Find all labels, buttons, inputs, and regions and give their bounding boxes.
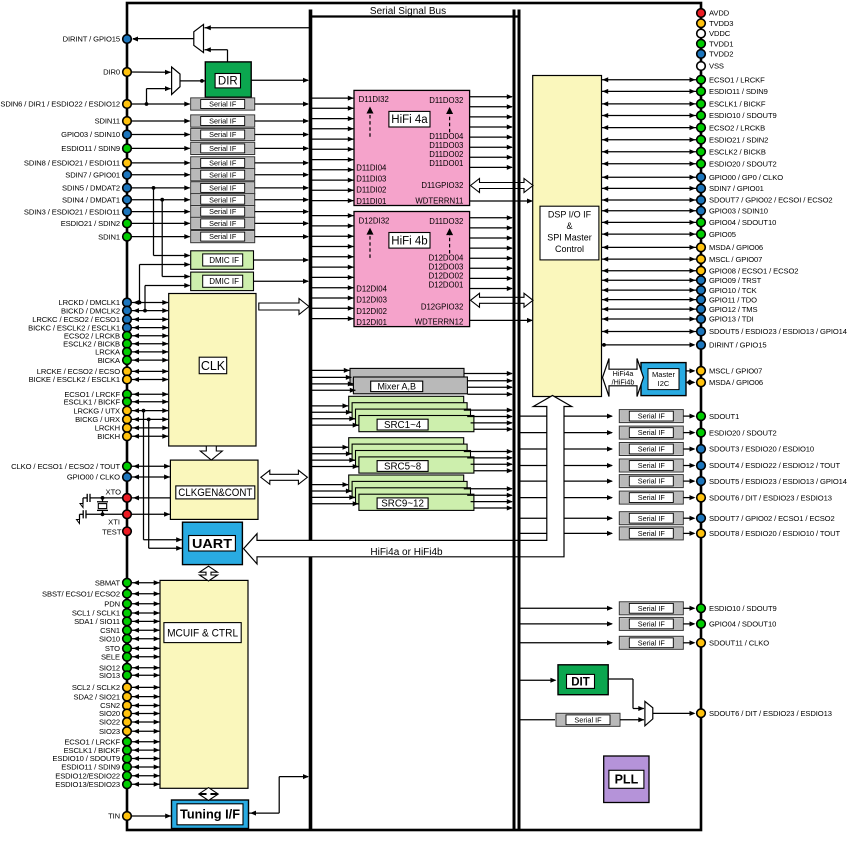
svg-text:Serial IF: Serial IF	[209, 232, 237, 241]
svg-text:Serial IF: Serial IF	[638, 514, 666, 523]
svg-text:PLL: PLL	[615, 773, 639, 787]
svg-text:D11DI03: D11DI03	[356, 175, 386, 184]
svg-text:D11GPIO32: D11GPIO32	[421, 181, 463, 190]
svg-text:Serial IF: Serial IF	[574, 715, 602, 724]
svg-text:GPIO05: GPIO05	[709, 230, 736, 239]
svg-text:HiFi4a or HiFi4b: HiFi4a or HiFi4b	[370, 547, 443, 558]
svg-text:SCL2 / SCLK2: SCL2 / SCLK2	[72, 683, 120, 692]
svg-text:Tuning I/F: Tuning I/F	[180, 808, 240, 822]
svg-text:SDOUT11 / CLKO: SDOUT11 / CLKO	[709, 639, 769, 648]
svg-text:ESDIO10 / SDOUT9: ESDIO10 / SDOUT9	[709, 604, 777, 613]
svg-text:SDOUT3 / ESDIO20 / ESDIO10: SDOUT3 / ESDIO20 / ESDIO10	[709, 445, 814, 454]
svg-text:GPIO00 / CLKO: GPIO00 / CLKO	[67, 473, 120, 482]
svg-text:Serial IF: Serial IF	[638, 477, 666, 486]
svg-text:SPI Master: SPI Master	[547, 233, 592, 243]
svg-text:DIR: DIR	[218, 76, 238, 88]
svg-text:DIR0: DIR0	[103, 68, 120, 77]
svg-text:D12DI01: D12DI01	[356, 318, 387, 327]
svg-text:Serial IF: Serial IF	[209, 207, 237, 216]
svg-text:Serial IF: Serial IF	[209, 130, 237, 139]
svg-text:WDTERRN11: WDTERRN11	[415, 197, 463, 206]
svg-text:D12DO03: D12DO03	[429, 262, 464, 271]
svg-text:&: &	[566, 221, 572, 231]
svg-text:SDOUT6 / DIT / ESDIO23 / ESDIO: SDOUT6 / DIT / ESDIO23 / ESDIO13	[709, 493, 832, 502]
svg-text:VSS: VSS	[709, 62, 724, 71]
svg-text:SDOUT7 / GPIO02 / ECSOI / ECS: SDOUT7 / GPIO02 / ECSOI / ECSO2	[709, 196, 833, 205]
svg-text:D11DI32: D11DI32	[359, 95, 389, 104]
svg-text:ESCLK1 / BICKF: ESCLK1 / BICKF	[64, 397, 121, 406]
svg-text:ESDIO11 / SDIN9: ESDIO11 / SDIN9	[709, 87, 768, 96]
svg-text:Serial IF: Serial IF	[209, 195, 237, 204]
svg-text:GPIO00 / GP0 / CLKO: GPIO00 / GP0 / CLKO	[709, 173, 783, 182]
svg-text:ESDIO13/ESDIO23: ESDIO13/ESDIO23	[55, 780, 120, 789]
svg-text:CLKO / ECSO1 / ECSO2 / TOUT: CLKO / ECSO1 / ECSO2 / TOUT	[11, 462, 120, 471]
svg-text:ESCLK1 / BICKF: ESCLK1 / BICKF	[709, 100, 766, 109]
svg-text:Serial IF: Serial IF	[638, 604, 666, 613]
svg-text:CLKGEN&CONT: CLKGEN&CONT	[178, 487, 252, 499]
svg-text:SDOUT1: SDOUT1	[709, 412, 739, 421]
svg-text:DIRINT / GPIO15: DIRINT / GPIO15	[63, 35, 120, 44]
svg-text:TVDD2: TVDD2	[709, 50, 733, 59]
svg-text:Serial IF: Serial IF	[209, 100, 237, 109]
svg-text:TVDD3: TVDD3	[709, 19, 733, 28]
svg-text:GPIO13 / TDI: GPIO13 / TDI	[709, 315, 754, 324]
svg-text:SDIN3 / ESDIO21 / ESDIO11: SDIN3 / ESDIO21 / ESDIO11	[24, 207, 120, 216]
svg-text:SRC1~4: SRC1~4	[384, 420, 422, 431]
svg-text:GPIO10 / TCK: GPIO10 / TCK	[709, 286, 757, 295]
svg-text:BICKD / DMCLK2: BICKD / DMCLK2	[61, 306, 120, 315]
svg-text:D12DI03: D12DI03	[356, 296, 387, 305]
svg-text:Serial IF: Serial IF	[209, 219, 237, 228]
svg-text:D11DO04: D11DO04	[429, 132, 464, 141]
svg-text:LRCKG / UTX: LRCKG / UTX	[73, 406, 120, 415]
svg-text:D12DI02: D12DI02	[356, 307, 387, 316]
svg-text:TVDD1: TVDD1	[709, 39, 733, 48]
svg-text:DMIC IF: DMIC IF	[209, 277, 239, 286]
svg-text:MSDA / GPIO06: MSDA / GPIO06	[709, 243, 763, 252]
svg-text:SDOUT5 / ESDIO23 / ESDIO13 / G: SDOUT5 / ESDIO23 / ESDIO13 / GPIO14	[709, 477, 847, 486]
svg-text:SDIN7 / GPIO01: SDIN7 / GPIO01	[709, 184, 764, 193]
svg-text:SDA1 / SIO11: SDA1 / SIO11	[74, 617, 120, 626]
svg-text:Serial IF: Serial IF	[638, 461, 666, 470]
svg-text:BICKA: BICKA	[98, 356, 121, 365]
svg-text:Serial IF: Serial IF	[638, 428, 666, 437]
svg-text:GPIO11 / TDO: GPIO11 / TDO	[709, 295, 757, 304]
svg-text:MCUIF & CTRL: MCUIF & CTRL	[167, 628, 238, 640]
svg-text:CLK: CLK	[201, 359, 226, 373]
svg-text:D11DI01: D11DI01	[356, 197, 386, 206]
svg-text:AVDD: AVDD	[709, 9, 730, 18]
svg-text:SELE: SELE	[101, 653, 120, 662]
svg-text:ESDIO11 / SDIN9: ESDIO11 / SDIN9	[61, 144, 120, 153]
svg-text:SDOUT5 / ESDIO23 / ESDIO13 / G: SDOUT5 / ESDIO23 / ESDIO13 / GPIO14	[709, 327, 847, 336]
svg-text:SDOUT7 / GPIO02 / ECSO1 / ECSO: SDOUT7 / GPIO02 / ECSO1 / ECSO2	[709, 514, 835, 523]
svg-text:MSDA / GPIO06: MSDA / GPIO06	[709, 378, 763, 387]
svg-text:/HiFi4b: /HiFi4b	[612, 378, 635, 387]
svg-text:ESDIO20 / SDOUT2: ESDIO20 / SDOUT2	[709, 160, 777, 169]
svg-text:GPIO12 / TMS: GPIO12 / TMS	[709, 305, 757, 314]
svg-text:SBST/ ECSO1/ ECSO2: SBST/ ECSO1/ ECSO2	[42, 589, 120, 598]
svg-text:DSP I/O IF: DSP I/O IF	[548, 210, 592, 220]
svg-text:D11DI02: D11DI02	[356, 186, 386, 195]
svg-text:SDIN8 / ESDIO21 / ESDIO11: SDIN8 / ESDIO21 / ESDIO11	[24, 159, 120, 168]
svg-text:PDN: PDN	[104, 599, 120, 608]
svg-text:ECSO1 / LRCKF: ECSO1 / LRCKF	[709, 75, 765, 84]
svg-text:HiFi 4b: HiFi 4b	[391, 235, 427, 247]
svg-text:ESDIO10 / SDOUT9: ESDIO10 / SDOUT9	[709, 111, 777, 120]
svg-text:D12DI32: D12DI32	[359, 216, 390, 225]
svg-text:XTO: XTO	[106, 488, 122, 497]
svg-text:Serial IF: Serial IF	[638, 620, 666, 629]
svg-text:SDA2 / SIO21: SDA2 / SIO21	[74, 692, 121, 701]
svg-text:D12DI04: D12DI04	[356, 284, 387, 293]
svg-text:ESDIO11 / SDIN9: ESDIO11 / SDIN9	[61, 763, 120, 772]
svg-text:BICKH: BICKH	[97, 432, 120, 441]
svg-text:Serial IF: Serial IF	[638, 412, 666, 421]
svg-text:SDIN11: SDIN11	[95, 117, 120, 126]
svg-text:WDTERRN12: WDTERRN12	[415, 318, 464, 327]
svg-text:Serial Signal Bus: Serial Signal Bus	[370, 6, 446, 17]
svg-text:SDIN7 / GPIO01: SDIN7 / GPIO01	[65, 170, 120, 179]
svg-text:Serial IF: Serial IF	[209, 117, 237, 126]
svg-text:D12DO04: D12DO04	[429, 253, 464, 262]
svg-text:ESDIO20 / SDOUT2: ESDIO20 / SDOUT2	[709, 428, 777, 437]
svg-text:ESDIO21 / SDIN2: ESDIO21 / SDIN2	[61, 219, 120, 228]
svg-text:SDIN4 / DMDAT1: SDIN4 / DMDAT1	[62, 195, 120, 204]
svg-text:Mixer A,B: Mixer A,B	[377, 382, 416, 392]
svg-text:Serial IF: Serial IF	[638, 493, 666, 502]
svg-text:GPIO08 / ECSO1 / ECSO2: GPIO08 / ECSO1 / ECSO2	[709, 266, 798, 275]
svg-text:D11DO01: D11DO01	[429, 159, 463, 168]
svg-text:ESCLK2 / BICKB: ESCLK2 / BICKB	[709, 147, 766, 156]
svg-text:HiFi 4a: HiFi 4a	[391, 114, 428, 126]
svg-text:SBMAT: SBMAT	[95, 578, 121, 587]
svg-text:GPIO03 / SDIN10: GPIO03 / SDIN10	[709, 207, 768, 216]
svg-text:DIRINT / GPIO15: DIRINT / GPIO15	[709, 341, 766, 350]
svg-text:GPIO04 / SDOUT10: GPIO04 / SDOUT10	[709, 218, 776, 227]
svg-text:SIO22: SIO22	[99, 718, 120, 727]
svg-text:Serial IF: Serial IF	[209, 144, 237, 153]
svg-text:GPIO09 / TRST: GPIO09 / TRST	[709, 276, 762, 285]
svg-text:Serial IF: Serial IF	[638, 529, 666, 538]
svg-text:UART: UART	[192, 536, 232, 551]
svg-text:Serial IF: Serial IF	[209, 170, 237, 179]
svg-text:Serial IF: Serial IF	[638, 638, 666, 647]
svg-text:I2C: I2C	[658, 379, 670, 388]
svg-text:D12GPIO32: D12GPIO32	[421, 302, 463, 311]
svg-text:SDIN1: SDIN1	[98, 232, 120, 241]
svg-text:SIO13: SIO13	[99, 671, 120, 680]
svg-text:D11DO02: D11DO02	[429, 150, 463, 159]
svg-text:SIO23: SIO23	[99, 727, 120, 736]
svg-text:TEST: TEST	[102, 528, 122, 537]
svg-text:GPIO03 / SDIN10: GPIO03 / SDIN10	[61, 130, 120, 139]
svg-text:Control: Control	[555, 244, 584, 254]
svg-text:SRC5~8: SRC5~8	[384, 461, 422, 472]
svg-text:Serial IF: Serial IF	[638, 445, 666, 454]
svg-text:TIN: TIN	[108, 812, 120, 821]
svg-text:DMIC IF: DMIC IF	[209, 256, 239, 265]
svg-text:Serial IF: Serial IF	[209, 159, 237, 168]
svg-text:SDIN5 / DMDAT2: SDIN5 / DMDAT2	[62, 184, 120, 193]
svg-text:Serial IF: Serial IF	[209, 184, 237, 193]
svg-text:D12DO01: D12DO01	[429, 280, 464, 289]
svg-text:D11DI04: D11DI04	[356, 163, 387, 172]
svg-text:VDDC: VDDC	[709, 29, 731, 38]
svg-text:XTI: XTI	[108, 518, 120, 527]
svg-text:SDOUT6 / DIT / ESDIO23 / ESDIO: SDOUT6 / DIT / ESDIO23 / ESDIO13	[709, 709, 832, 718]
svg-text:ECSO2 / LRCKB: ECSO2 / LRCKB	[709, 123, 765, 132]
svg-text:BICKE / ESCLK2 / ESCLK1: BICKE / ESCLK2 / ESCLK1	[29, 375, 120, 384]
svg-text:SDIN6 / DIR1 / ESDIO22 / ESDIO: SDIN6 / DIR1 / ESDIO22 / ESDIO12	[0, 100, 120, 109]
svg-text:Master: Master	[652, 370, 675, 379]
svg-text:ESDIO21 / SDIN2: ESDIO21 / SDIN2	[709, 135, 768, 144]
svg-text:SDOUT4 / ESDIO22 / ESDIO12 / T: SDOUT4 / ESDIO22 / ESDIO12 / TOUT	[709, 461, 840, 470]
svg-text:D12DO02: D12DO02	[429, 271, 464, 280]
svg-text:DIT: DIT	[571, 676, 590, 688]
svg-text:SDOUT8 / ESDIO20 / ESDIO10 / T: SDOUT8 / ESDIO20 / ESDIO10 / TOUT	[709, 529, 840, 538]
svg-text:MSCL / GPIO07: MSCL / GPIO07	[709, 255, 762, 264]
svg-text:MSCL / GPIO07: MSCL / GPIO07	[709, 367, 762, 376]
svg-text:D11DO03: D11DO03	[429, 141, 463, 150]
svg-text:SRC9~12: SRC9~12	[381, 499, 424, 510]
svg-text:D11DO32: D11DO32	[429, 96, 463, 105]
svg-text:D11DO32: D11DO32	[429, 217, 463, 226]
svg-text:SIO10: SIO10	[99, 634, 120, 643]
svg-text:GPIO04 / SDOUT10: GPIO04 / SDOUT10	[709, 620, 776, 629]
